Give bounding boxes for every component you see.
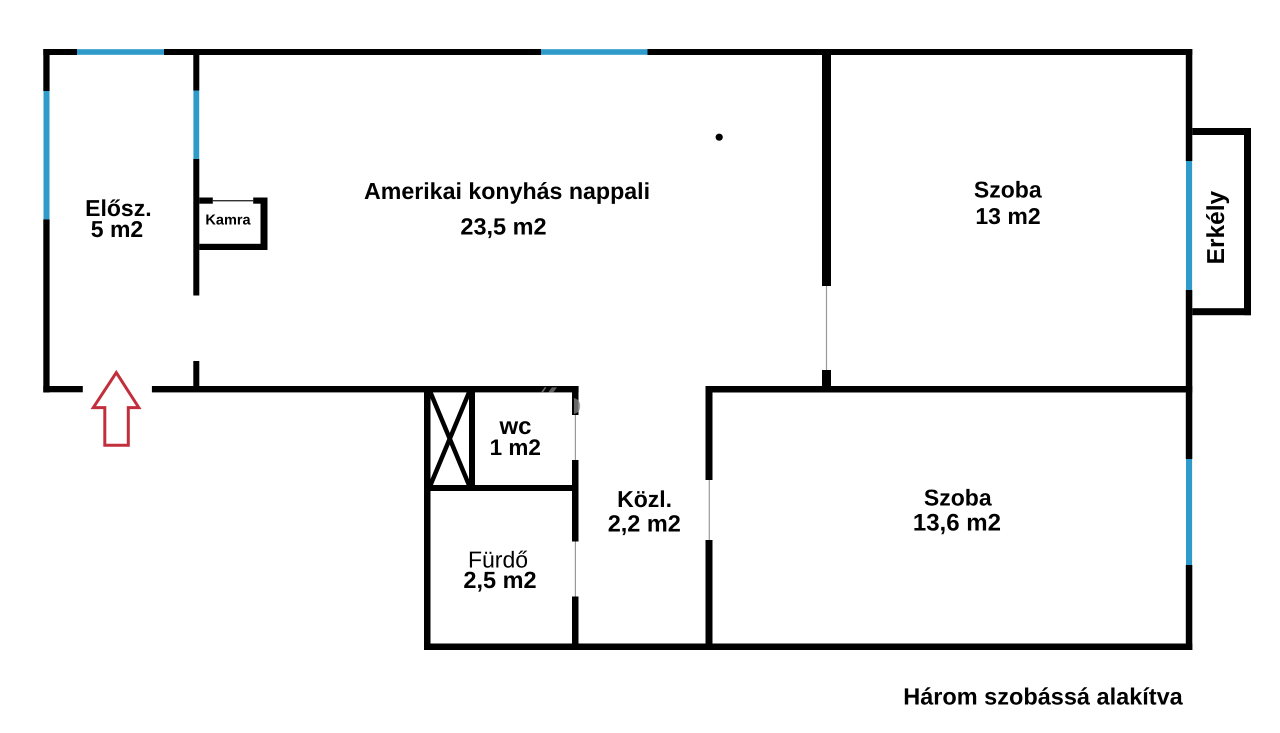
svg-text:Amerikai konyhás nappali: Amerikai konyhás nappali — [364, 178, 650, 204]
svg-text:2,2 m2: 2,2 m2 — [608, 511, 681, 537]
svg-text:Szoba: Szoba — [924, 485, 992, 511]
svg-text:Kamra: Kamra — [205, 213, 251, 229]
svg-text:13 m2: 13 m2 — [975, 203, 1040, 229]
svg-text:13,6 m2: 13,6 m2 — [913, 510, 1001, 537]
svg-text:23,5 m2: 23,5 m2 — [460, 214, 546, 240]
svg-text:1 m2: 1 m2 — [490, 435, 541, 460]
svg-text:Közl.: Közl. — [617, 486, 672, 512]
svg-text:Szoba: Szoba — [974, 177, 1042, 203]
svg-text:2,5 m2: 2,5 m2 — [463, 567, 536, 593]
svg-text:5 m2: 5 m2 — [91, 216, 143, 242]
svg-text:Erkély: Erkély — [1203, 190, 1230, 264]
svg-text:Három szobássá alakítva: Három szobássá alakítva — [903, 683, 1183, 709]
